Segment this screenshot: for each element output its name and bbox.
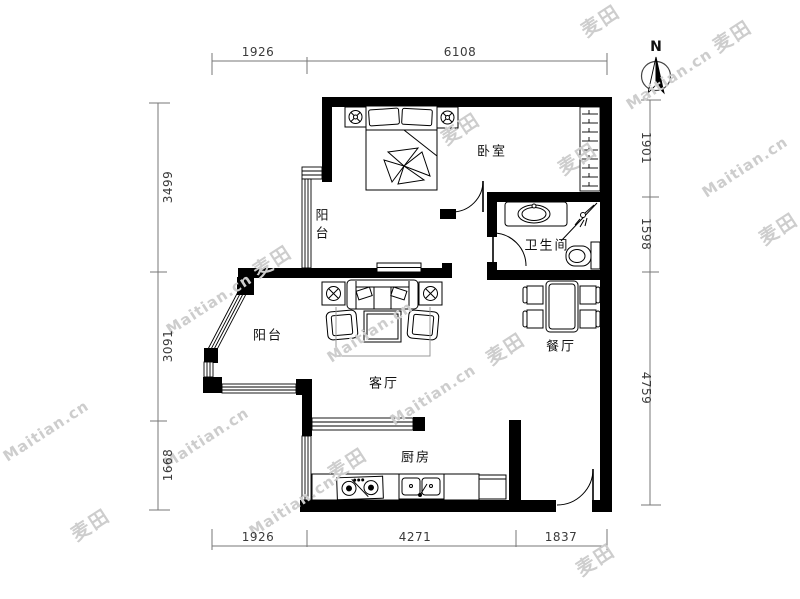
- wall-bedroom-door-jamb: [440, 209, 456, 219]
- room-label-bathroom: 卫生间: [524, 235, 569, 254]
- room-label-dining: 餐厅: [546, 336, 576, 355]
- room-label-balcony-north: 阳台: [311, 208, 330, 244]
- coffee-table-icon: [364, 311, 401, 342]
- room-label-balcony-west: 阳台: [253, 325, 283, 344]
- side-table-left-icon: [322, 282, 345, 305]
- wall-balcony-corner-mid: [204, 348, 218, 363]
- wall-kitchen-entry: [509, 420, 521, 500]
- armchair-right-icon: [407, 310, 439, 341]
- entry-door: [557, 469, 593, 505]
- room-label-kitchen: 厨房: [401, 447, 431, 466]
- stove-icon: [337, 476, 384, 500]
- wall-bathroom-west-upper: [487, 192, 497, 237]
- dim-right-3: 4759: [639, 372, 653, 405]
- dim-top-2: 6108: [444, 45, 477, 59]
- wall-bedroom-left: [322, 97, 332, 182]
- dim-bottom-3: 1837: [545, 530, 578, 544]
- wall-bathroom-north: [497, 192, 600, 202]
- window-balcony-west-vertical: [204, 362, 213, 377]
- window-balcony-north-top: [302, 167, 322, 179]
- floor-plan-canvas: 麦田 Maitian.cn 麦田 Maitian.cn 麦田 麦田 麦田 Mai…: [0, 0, 800, 599]
- dim-top-1: 1926: [242, 45, 275, 59]
- room-label-living: 客厅: [369, 373, 399, 392]
- wardrobe-icon: [580, 107, 600, 191]
- dim-right-1: 1901: [639, 132, 653, 165]
- wall-bathroom-south: [487, 270, 612, 280]
- compass-north-label: N: [650, 39, 662, 55]
- wall-bottom-right: [592, 500, 612, 512]
- floor-plan-drawing: [0, 0, 800, 599]
- bathroom-door: [493, 233, 526, 266]
- window-kitchen-left: [302, 436, 311, 500]
- dim-left-2: 3091: [161, 330, 175, 363]
- dim-bottom-1: 1926: [242, 530, 275, 544]
- wall-kitchen-left-upper: [302, 382, 312, 436]
- bed-icon: [366, 106, 437, 190]
- window-balcony-west-bottom: [222, 384, 296, 393]
- dim-left-1: 3499: [161, 171, 175, 204]
- bedroom-door: [452, 181, 483, 212]
- dim-bottom-2: 4271: [399, 530, 432, 544]
- wall-balcony-corner-top: [237, 277, 254, 295]
- wall-kitchen-window-post: [413, 417, 425, 431]
- tv-icon: [377, 263, 421, 272]
- window-balcony-west-diagonal: [207, 288, 247, 355]
- room-label-bedroom: 卧室: [477, 141, 507, 160]
- fridge-icon: [479, 475, 506, 499]
- nightstand-left-icon: [345, 107, 366, 127]
- sink-icon: [399, 474, 444, 499]
- wall-living-north-cap: [442, 263, 452, 278]
- window-kitchen-top: [312, 418, 413, 430]
- sofa-icon: [347, 280, 418, 309]
- toilet-icon: [566, 242, 600, 269]
- dim-left-3: 1668: [161, 449, 175, 482]
- dim-right-2: 1598: [639, 218, 653, 251]
- side-table-right-icon: [419, 282, 442, 305]
- wall-bottom-left: [300, 500, 556, 512]
- compass-icon: [642, 57, 671, 93]
- armchair-left-icon: [326, 310, 358, 341]
- dining-table-icon: [546, 281, 578, 332]
- wall-balcony-corner-bottom: [203, 377, 222, 393]
- nightstand-right-icon: [437, 107, 458, 128]
- bathroom-vanity-icon: [505, 202, 567, 226]
- wall-right: [600, 107, 612, 512]
